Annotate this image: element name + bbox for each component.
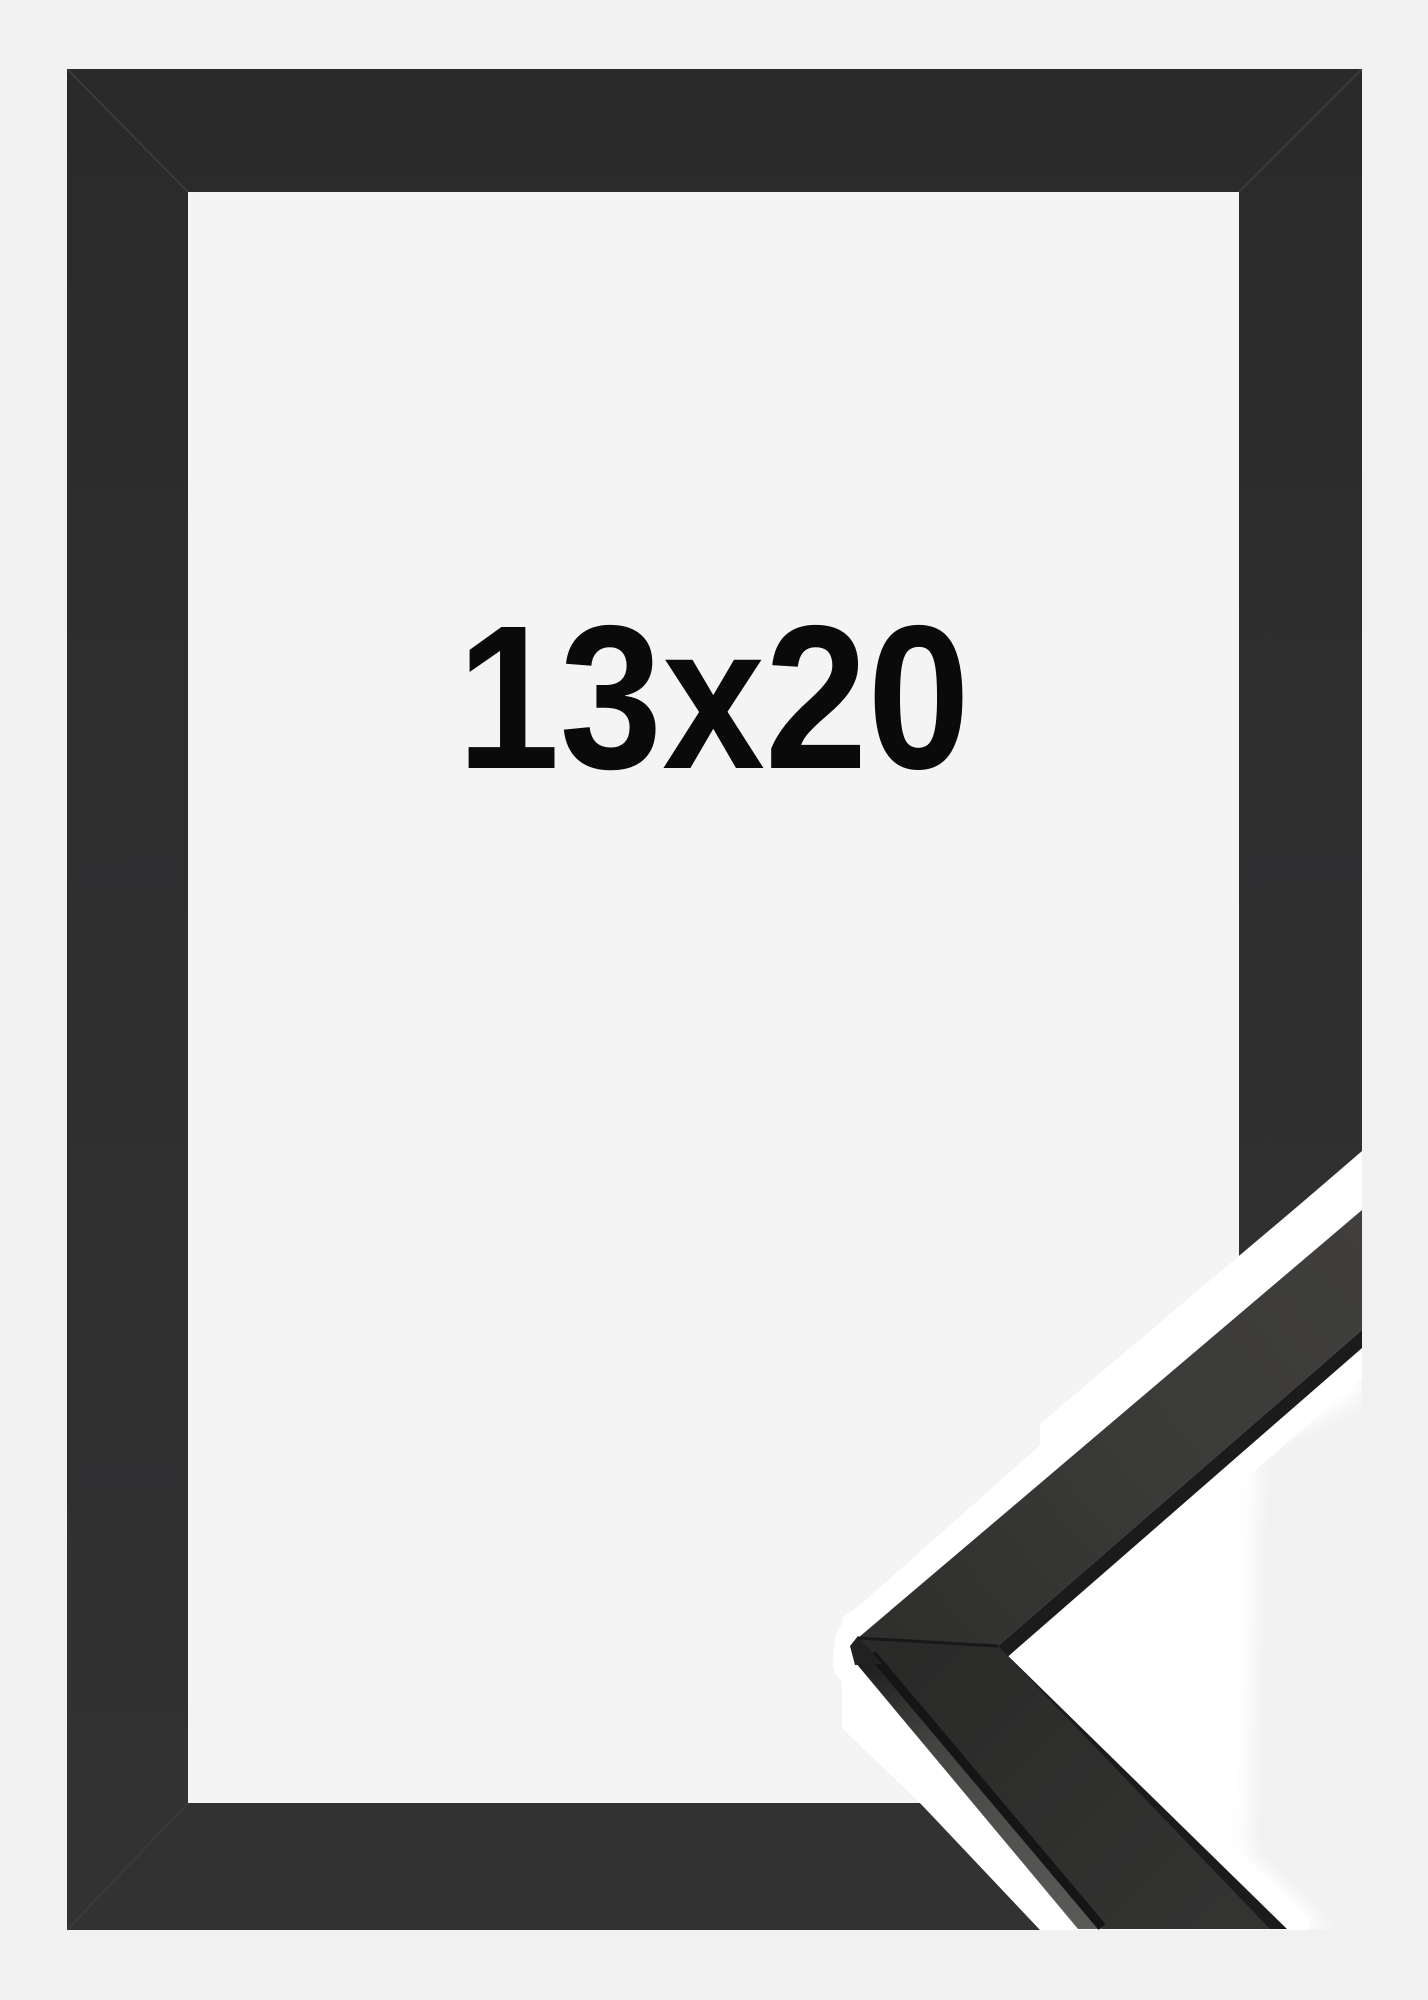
svg-text:13x20: 13x20 (457, 583, 970, 812)
